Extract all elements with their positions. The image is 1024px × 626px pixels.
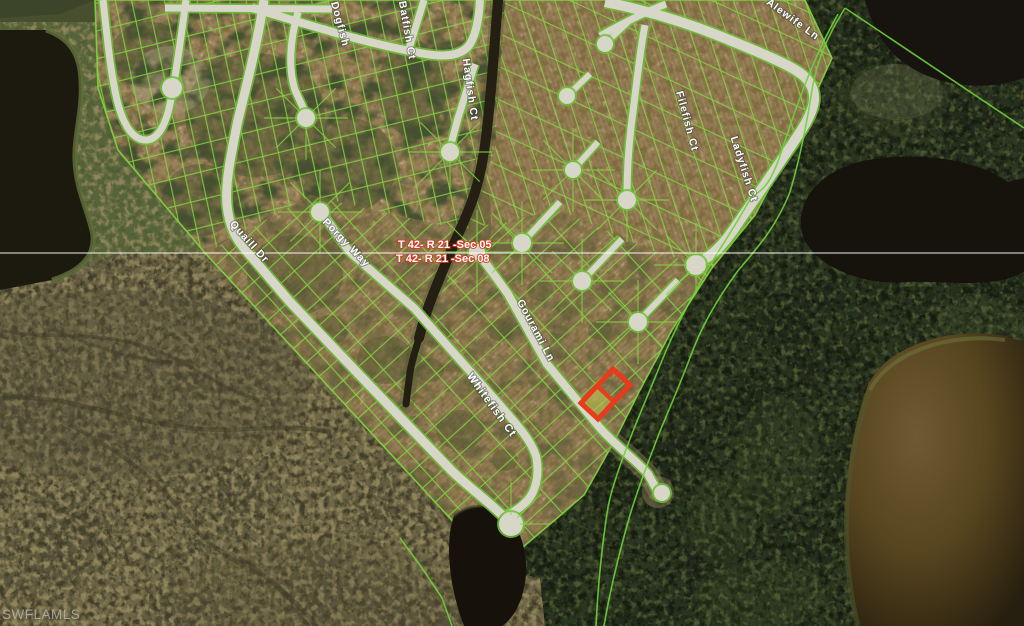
svg-text:T 42- R 21 -Sec 05: T 42- R 21 -Sec 05 — [398, 239, 492, 251]
svg-text:SWFLAMLS: SWFLAMLS — [2, 607, 80, 622]
svg-text:T 42- R 21 -Sec 08: T 42- R 21 -Sec 08 — [396, 253, 490, 265]
